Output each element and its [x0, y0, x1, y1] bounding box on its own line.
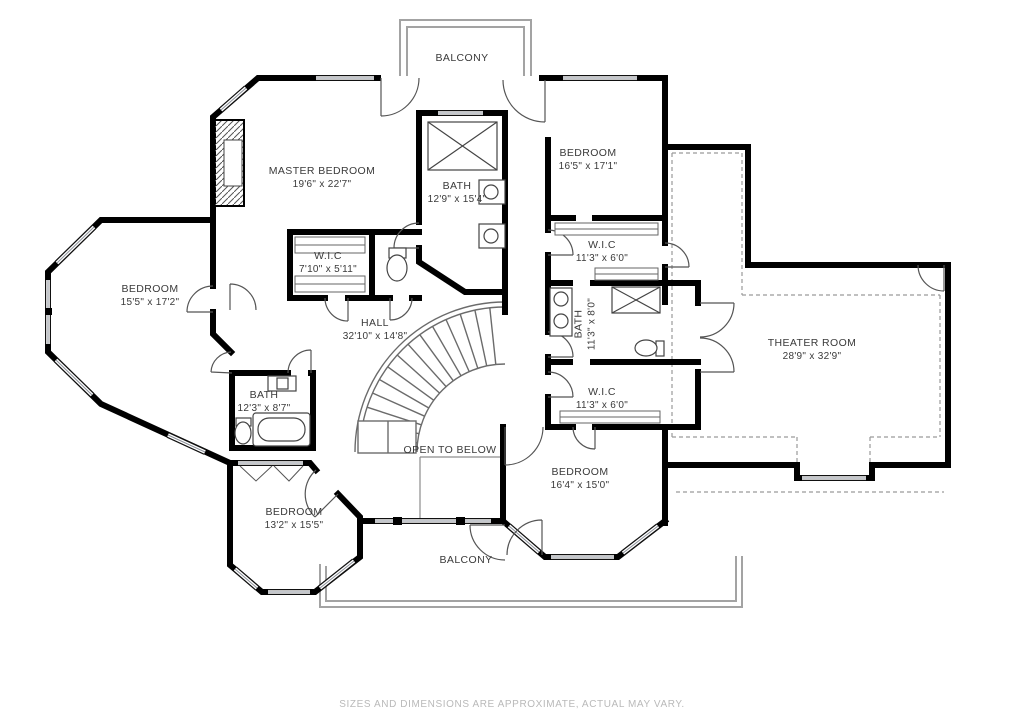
room-label-bedroom-left: BEDROOM15'5" x 17'2": [121, 283, 180, 310]
room-label-balcony-bottom: BALCONY: [440, 554, 493, 567]
room-label-hall: HALL32'10" x 14'8": [343, 317, 408, 344]
room-label-bedroom-bottom-left: BEDROOM13'2" x 15'5": [265, 506, 324, 533]
walls: [48, 78, 948, 592]
floor-plan: BALCONY MASTER BEDROOM19'6" x 22'7" BATH…: [0, 0, 1024, 724]
disclaimer-note: SIZES AND DIMENSIONS ARE APPROXIMATE, AC…: [0, 699, 1024, 710]
room-label-bath-left: BATH12'3" x 8'7": [238, 389, 291, 416]
open-to-below-edge: [420, 457, 503, 518]
room-label-bedroom-bottom-right: BEDROOM16'4" x 15'0": [551, 466, 610, 493]
room-label-theater-room: THEATER ROOM28'9" x 32'9": [768, 337, 857, 364]
room-label-wic-lower: W.I.C11'3" x 6'0": [576, 386, 628, 413]
room-label-balcony-top: BALCONY: [436, 52, 489, 65]
room-label-bedroom-top-right: BEDROOM16'5" x 17'1": [559, 147, 618, 174]
room-label-open-to-below: OPEN TO BELOW: [404, 444, 497, 457]
floor-plan-drawing: [0, 0, 1024, 724]
theater-ceiling-dashed-lines: [672, 153, 944, 492]
balcony-bottom-railing: [320, 556, 742, 607]
room-label-wic-master: W.I.C7'10" x 5'11": [299, 250, 357, 277]
room-label-master-bath: BATH12'9" x 15'4": [428, 180, 487, 207]
balcony-top-railing: [400, 20, 531, 76]
room-label-wic-upper: W.I.C11'3" x 6'0": [576, 239, 628, 266]
room-label-master-bedroom: MASTER BEDROOM19'6" x 22'7": [269, 165, 376, 192]
room-label-bath-middle: BATH11'3" x 8'0": [573, 298, 600, 350]
window-seat-notches: [240, 466, 303, 481]
fireplace: [214, 120, 244, 206]
